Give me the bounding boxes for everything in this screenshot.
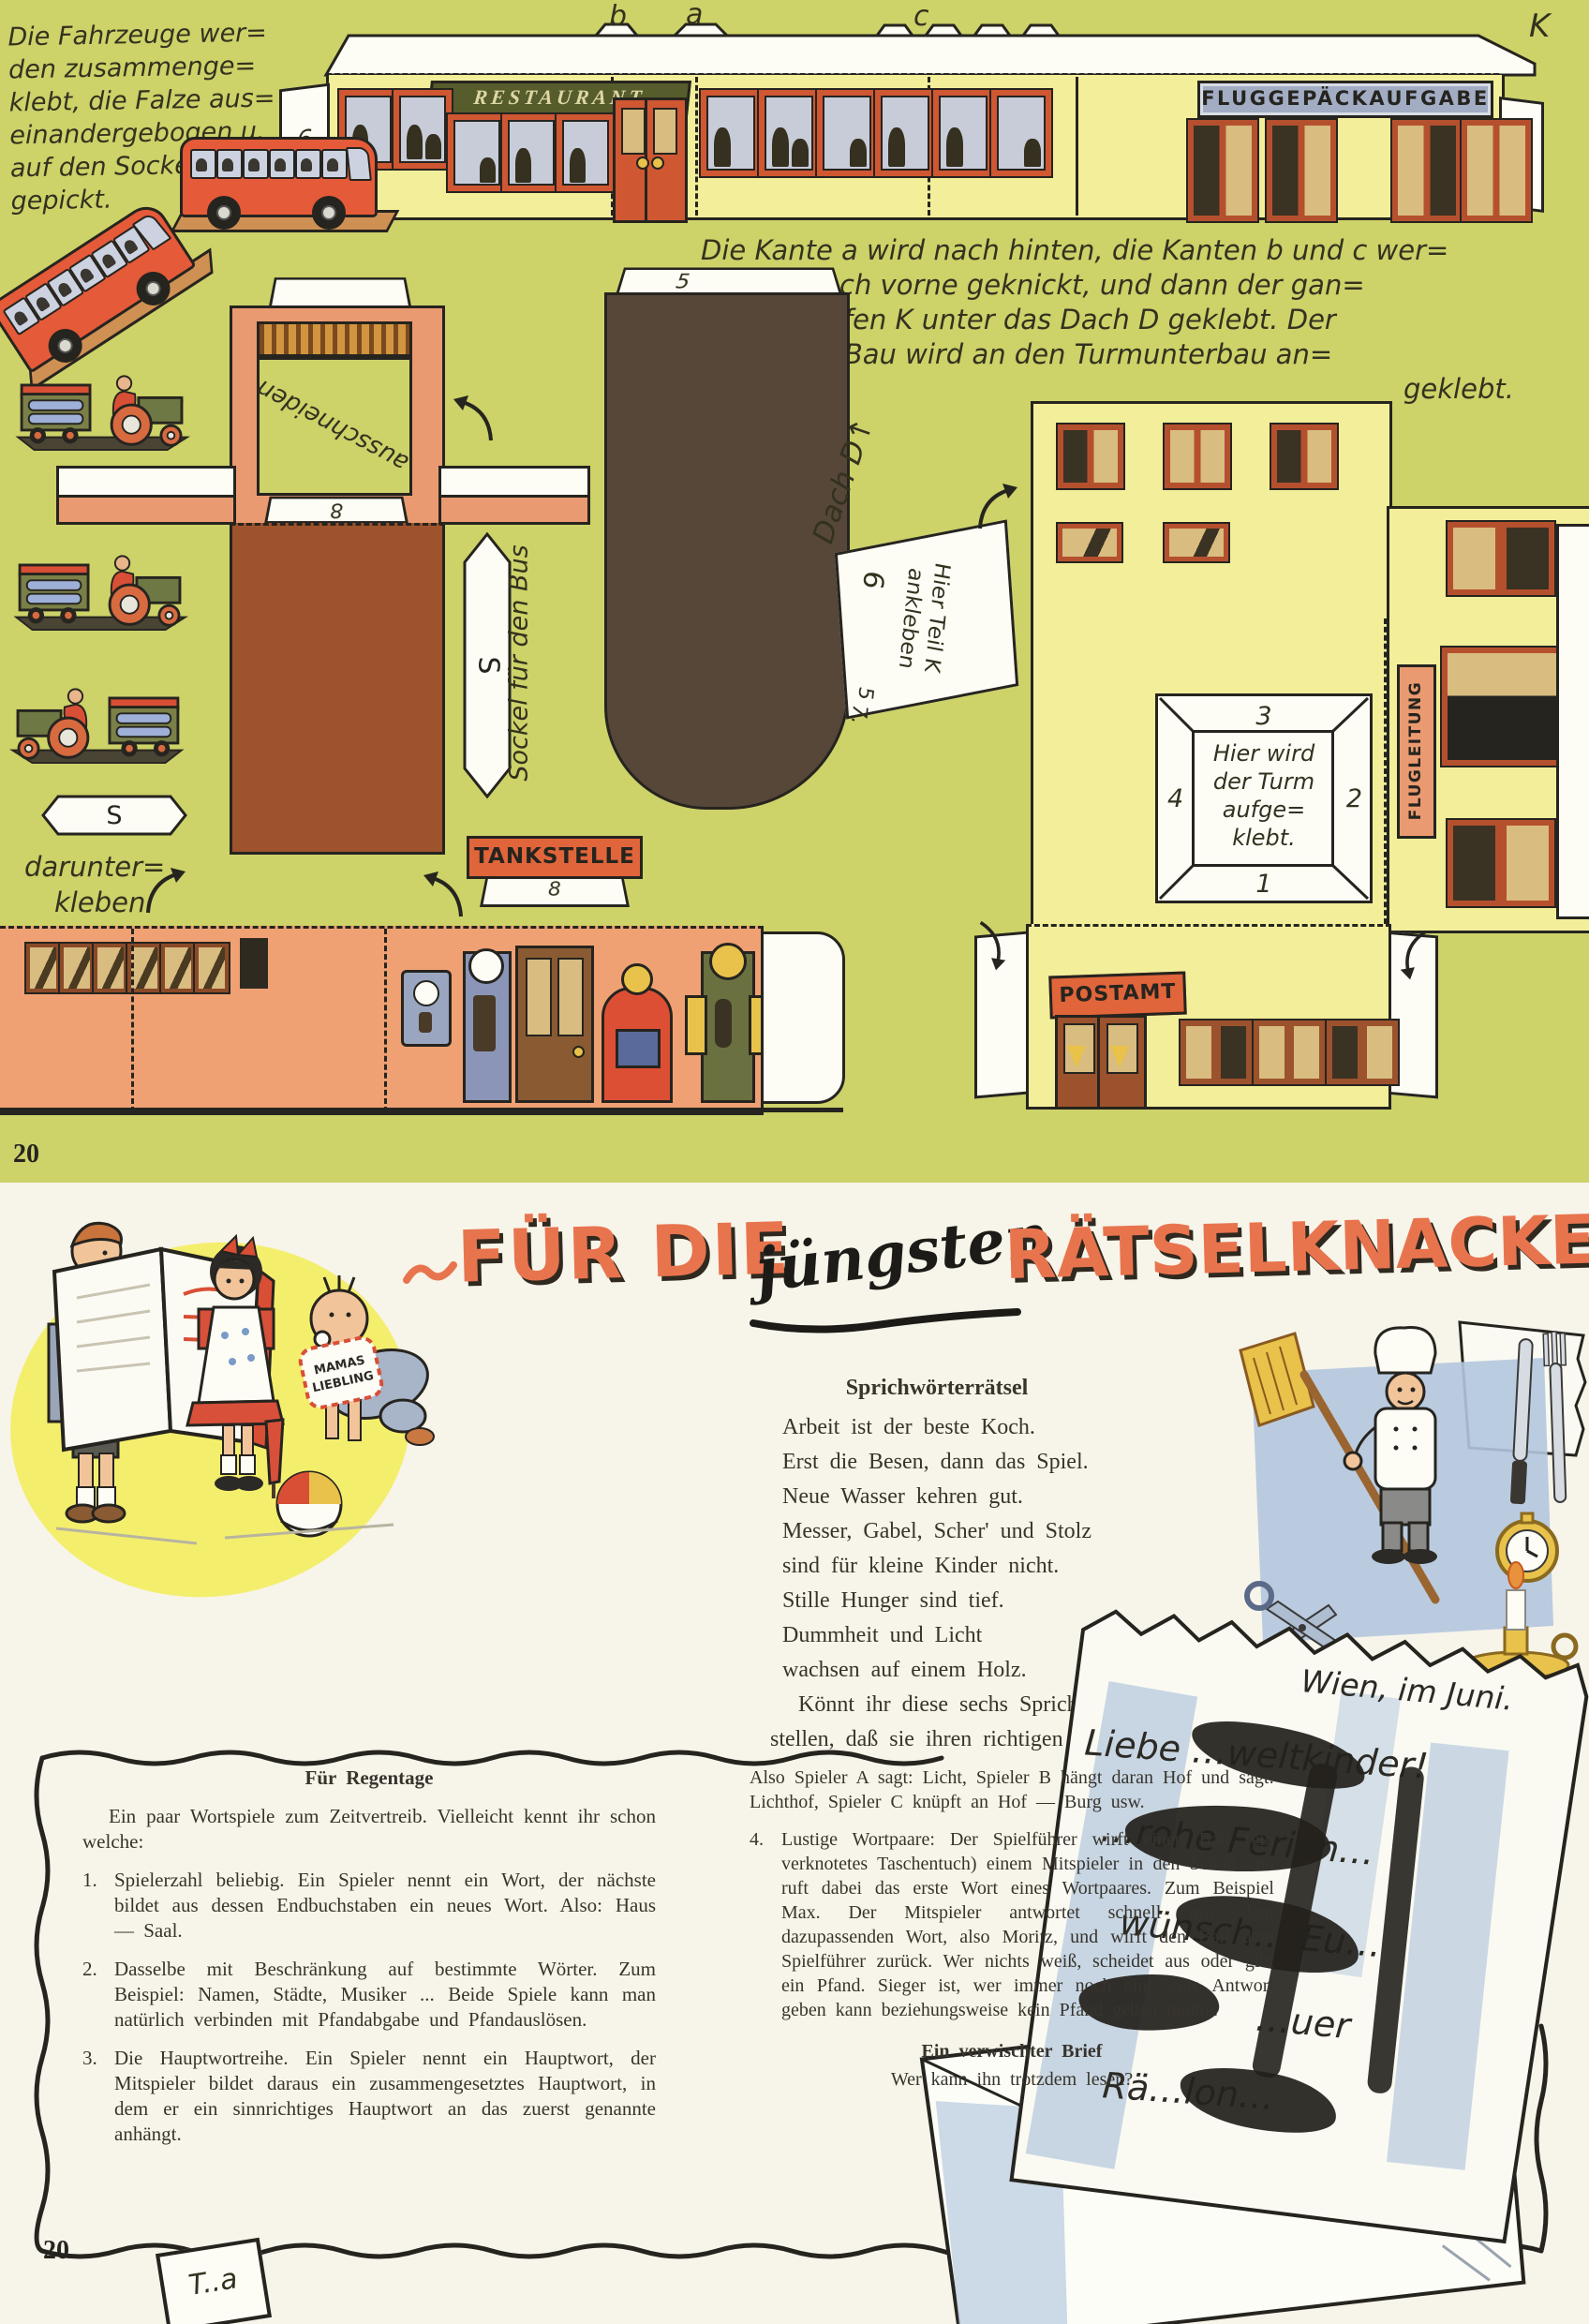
puzzle-section: FÜR DIE jüngsten RÄTSELKNACKER: [0, 0, 1589, 2324]
page-number-bottom: 20: [43, 2236, 69, 2266]
column-regentage: Für Regentage Ein paar Wortspiele zum Ze…: [82, 1765, 656, 2147]
list-item: 1. Spielerzahl beliebig. Ein Spieler nen…: [82, 1868, 656, 1944]
title-part1: FÜR DIE: [456, 1206, 792, 1298]
list-item: 4. Lustige Wortpaare: Der Spielführer wi…: [750, 1827, 1274, 2022]
sprichwoerter-lines: Arbeit ist der beste Koch. Erst die Bese…: [782, 1415, 1092, 1692]
brief-question: Wer kann ihn trotzdem lesen?: [750, 2067, 1274, 2092]
list-item: 3. Die Hauptwortreihe. Ein Spieler nennt…: [82, 2046, 656, 2147]
regentage-heading: Für Regentage: [82, 1765, 656, 1791]
games2-intro: Also Spieler A sagt: Licht, Spieler B hä…: [750, 1765, 1274, 1814]
corner-tag: T..a: [156, 2238, 272, 2324]
brief-heading: Ein verwischter Brief: [750, 2039, 1274, 2063]
children-illustration: MAMAS LIEBLING: [0, 1214, 440, 1626]
magazine-page: Die Fahrzeuge wer= den zusammenge= klebt…: [0, 0, 1589, 2324]
column-games2: Also Spieler A sagt: Licht, Spieler B hä…: [750, 1765, 1274, 2092]
sprichwoerter-heading: Sprichwörterrätsel: [778, 1376, 1096, 1401]
title-part3: RÄTSELKNACKER: [1003, 1199, 1589, 1294]
list-item: 2. Dasselbe mit Beschränkung auf bestimm…: [82, 1957, 656, 2033]
regentage-intro: Ein paar Wortspiele zum Zeitvertreib. Vi…: [82, 1804, 656, 1855]
title-underline: [746, 1304, 1046, 1336]
baby-bib: MAMAS LIEBLING: [298, 1335, 384, 1409]
